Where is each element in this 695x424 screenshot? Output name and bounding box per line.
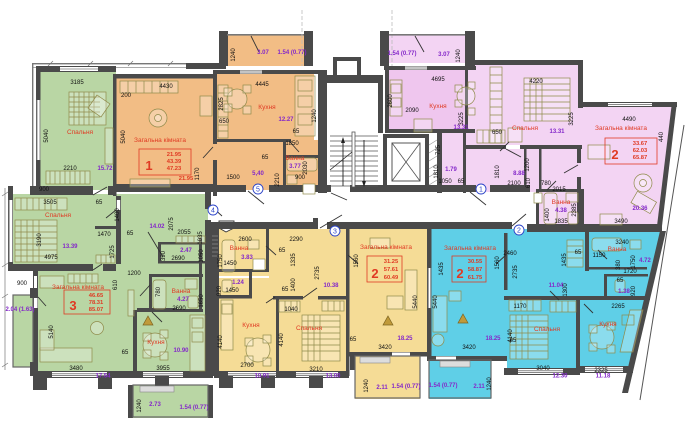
- svg-text:1400: 1400: [545, 208, 551, 222]
- svg-text:Ванна: Ванна: [552, 199, 571, 206]
- svg-text:1150: 1150: [593, 253, 607, 259]
- svg-text:1.54 (0.77): 1.54 (0.77): [277, 50, 306, 56]
- svg-text:3240: 3240: [615, 240, 629, 246]
- svg-text:1240: 1240: [137, 399, 143, 413]
- svg-text:1450: 1450: [223, 261, 237, 267]
- svg-text:3480: 3480: [69, 366, 83, 372]
- svg-text:Спальня: Спальня: [296, 325, 323, 332]
- svg-text:1170: 1170: [514, 304, 528, 310]
- svg-text:65: 65: [127, 231, 134, 237]
- svg-text:5040: 5040: [121, 130, 127, 144]
- svg-text:18.25: 18.25: [397, 336, 413, 342]
- svg-text:Спальня: Спальня: [512, 125, 539, 132]
- svg-text:4140: 4140: [508, 329, 514, 343]
- svg-text:5440: 5440: [433, 295, 439, 309]
- svg-text:1.54 (0.77): 1.54 (0.77): [179, 405, 208, 411]
- svg-text:1240: 1240: [312, 109, 318, 123]
- svg-text:1470: 1470: [97, 232, 111, 238]
- svg-text:2090: 2090: [405, 108, 419, 114]
- svg-text:3955: 3955: [156, 366, 170, 372]
- svg-text:2210: 2210: [63, 166, 77, 172]
- svg-text:3225: 3225: [569, 112, 575, 126]
- svg-text:2690: 2690: [172, 306, 186, 312]
- svg-text:Загальна кімната: Загальна кімната: [360, 243, 412, 251]
- svg-text:2.11: 2.11: [473, 384, 485, 390]
- svg-text:21.95: 21.95: [179, 176, 194, 182]
- svg-text:62.03: 62.03: [633, 148, 648, 154]
- svg-text:5040: 5040: [44, 129, 50, 143]
- svg-text:65: 65: [293, 129, 300, 135]
- svg-text:2210: 2210: [275, 173, 281, 187]
- svg-text:2700: 2700: [240, 363, 254, 369]
- svg-text:4.72: 4.72: [639, 258, 651, 264]
- svg-text:1170: 1170: [195, 167, 201, 181]
- svg-text:4695: 4695: [431, 77, 445, 83]
- svg-text:2290: 2290: [289, 237, 303, 243]
- svg-text:2055: 2055: [177, 230, 191, 236]
- svg-text:65: 65: [282, 287, 289, 293]
- svg-text:5: 5: [256, 187, 260, 194]
- svg-text:1435: 1435: [562, 253, 568, 267]
- svg-text:1810: 1810: [495, 165, 501, 179]
- svg-text:61.75: 61.75: [468, 275, 483, 281]
- svg-text:Спальня: Спальня: [534, 326, 561, 333]
- svg-text:Загальна кімната: Загальна кімната: [595, 124, 647, 132]
- svg-text:65: 65: [279, 248, 286, 254]
- svg-text:610: 610: [113, 279, 119, 290]
- svg-text:Кухня: Кухня: [147, 339, 165, 346]
- svg-text:2075: 2075: [169, 217, 175, 231]
- svg-text:4220: 4220: [529, 79, 543, 85]
- svg-text:900: 900: [39, 187, 50, 193]
- svg-text:1725: 1725: [110, 245, 116, 259]
- svg-text:17.54: 17.54: [95, 374, 111, 380]
- svg-text:18.25: 18.25: [485, 336, 501, 342]
- svg-text:78.31: 78.31: [89, 300, 104, 306]
- svg-text:200: 200: [121, 93, 132, 99]
- svg-text:5440: 5440: [413, 295, 419, 309]
- svg-text:1240: 1240: [231, 48, 237, 62]
- svg-text:3.07: 3.07: [438, 52, 450, 58]
- svg-text:1810: 1810: [434, 165, 440, 179]
- svg-text:1560: 1560: [354, 254, 360, 268]
- svg-text:5140: 5140: [49, 325, 55, 339]
- svg-text:4430: 4430: [159, 84, 173, 90]
- svg-text:Кухня: Кухня: [242, 322, 260, 329]
- svg-text:1240: 1240: [487, 377, 493, 391]
- svg-text:2015: 2015: [552, 187, 566, 193]
- svg-text:1720: 1720: [623, 269, 637, 275]
- svg-text:2825: 2825: [219, 97, 225, 111]
- svg-text:2030: 2030: [303, 161, 309, 175]
- svg-text:3505: 3505: [43, 200, 57, 206]
- svg-text:1560: 1560: [495, 256, 501, 270]
- svg-text:1240: 1240: [456, 49, 462, 63]
- svg-text:4490: 4490: [622, 117, 636, 123]
- svg-text:610: 610: [526, 177, 532, 188]
- svg-text:780: 780: [156, 286, 162, 297]
- svg-text:14.02: 14.02: [149, 224, 165, 230]
- svg-text:Загальна кімната: Загальна кімната: [444, 244, 496, 252]
- svg-text:2.11: 2.11: [376, 385, 388, 391]
- svg-text:47.23: 47.23: [167, 166, 182, 172]
- svg-text:1050: 1050: [199, 249, 205, 263]
- svg-text:2.04 (1.63): 2.04 (1.63): [5, 307, 34, 313]
- svg-text:1: 1: [145, 158, 152, 173]
- svg-text:65: 65: [350, 337, 357, 343]
- svg-text:Ванна: Ванна: [172, 288, 191, 295]
- svg-text:2735: 2735: [513, 265, 519, 279]
- svg-text:3040: 3040: [536, 366, 550, 372]
- svg-text:2265: 2265: [611, 304, 625, 310]
- svg-text:1650: 1650: [199, 294, 205, 308]
- svg-text:1750: 1750: [218, 254, 224, 268]
- svg-text:2100: 2100: [507, 181, 521, 187]
- svg-text:900: 900: [17, 281, 28, 287]
- svg-text:12.30: 12.30: [552, 374, 568, 380]
- svg-text:20.36: 20.36: [632, 206, 648, 212]
- svg-text:1.24: 1.24: [232, 280, 244, 286]
- svg-text:3190: 3190: [37, 233, 43, 247]
- svg-text:1.38: 1.38: [618, 289, 630, 295]
- svg-text:11.04: 11.04: [549, 283, 564, 289]
- svg-text:1500: 1500: [226, 175, 240, 181]
- svg-text:1450: 1450: [225, 288, 239, 294]
- svg-text:10.91: 10.91: [254, 374, 270, 380]
- svg-text:440: 440: [659, 131, 665, 142]
- svg-text:30.55: 30.55: [468, 259, 483, 265]
- svg-text:1750: 1750: [631, 255, 637, 269]
- svg-text:65: 65: [96, 200, 103, 206]
- svg-text:13.31: 13.31: [549, 129, 565, 135]
- svg-text:1200: 1200: [127, 271, 141, 277]
- svg-text:8.88: 8.88: [513, 171, 525, 177]
- svg-text:Ванна: Ванна: [608, 246, 627, 253]
- svg-text:Кухня: Кухня: [258, 104, 276, 111]
- svg-text:3420: 3420: [378, 345, 392, 351]
- svg-text:4: 4: [211, 208, 215, 215]
- svg-text:85.07: 85.07: [89, 307, 104, 313]
- svg-text:1335: 1335: [291, 253, 297, 267]
- svg-text:1: 1: [479, 187, 483, 194]
- svg-text:10.38: 10.38: [323, 283, 339, 289]
- svg-text:Ванна: Ванна: [230, 245, 249, 252]
- svg-text:1.54 (0.77): 1.54 (0.77): [391, 384, 420, 390]
- svg-text:Спальня: Спальня: [45, 212, 72, 219]
- svg-text:43.39: 43.39: [167, 159, 182, 165]
- svg-text:3490: 3490: [614, 219, 628, 225]
- svg-text:Спальня: Спальня: [67, 129, 94, 136]
- svg-text:900: 900: [295, 175, 306, 181]
- svg-text:65: 65: [617, 278, 624, 284]
- svg-text:1300: 1300: [563, 283, 569, 297]
- svg-text:1435: 1435: [439, 262, 445, 276]
- svg-text:1200: 1200: [525, 158, 531, 172]
- svg-text:2: 2: [456, 266, 463, 281]
- svg-text:21.95: 21.95: [167, 152, 182, 158]
- svg-text:2600: 2600: [388, 94, 394, 108]
- svg-text:65.87: 65.87: [633, 155, 648, 161]
- svg-text:65: 65: [262, 155, 269, 161]
- svg-text:1.54 (0.77): 1.54 (0.77): [387, 51, 416, 57]
- svg-text:Кухня: Кухня: [599, 321, 617, 328]
- svg-text:65: 65: [458, 179, 465, 185]
- svg-text:2: 2: [611, 147, 618, 162]
- svg-text:1040: 1040: [284, 307, 298, 313]
- svg-text:33.67: 33.67: [633, 141, 648, 147]
- svg-text:57.61: 57.61: [384, 267, 399, 273]
- svg-text:3210: 3210: [309, 367, 323, 373]
- svg-text:4445: 4445: [255, 82, 269, 88]
- svg-text:12.27: 12.27: [278, 117, 294, 123]
- svg-text:2735: 2735: [315, 266, 321, 280]
- svg-text:920: 920: [217, 285, 223, 296]
- svg-text:2.47: 2.47: [180, 248, 192, 254]
- svg-text:3: 3: [333, 229, 337, 236]
- svg-text:2690: 2690: [171, 256, 185, 262]
- svg-text:4140: 4140: [218, 335, 224, 349]
- svg-text:11.18: 11.18: [596, 374, 611, 380]
- svg-text:31.25: 31.25: [384, 259, 399, 265]
- svg-text:3.83: 3.83: [241, 255, 253, 261]
- svg-text:13.39: 13.39: [62, 244, 78, 250]
- svg-text:15.72: 15.72: [97, 166, 113, 172]
- svg-text:650: 650: [219, 119, 230, 125]
- svg-text:5,40: 5,40: [252, 171, 264, 177]
- svg-text:1035: 1035: [198, 231, 204, 245]
- svg-text:3.77: 3.77: [289, 164, 301, 170]
- svg-text:1850: 1850: [285, 141, 299, 147]
- svg-text:Загальна кімната: Загальна кімната: [134, 136, 186, 144]
- svg-text:58.87: 58.87: [468, 267, 483, 273]
- svg-text:4.38: 4.38: [555, 208, 567, 214]
- svg-text:3185: 3185: [70, 80, 84, 86]
- svg-text:Ванна: Ванна: [286, 155, 305, 162]
- svg-text:3.07: 3.07: [257, 50, 269, 56]
- svg-text:920: 920: [631, 285, 637, 296]
- svg-text:725: 725: [436, 144, 442, 155]
- svg-text:46.65: 46.65: [89, 293, 104, 299]
- svg-text:3420: 3420: [462, 345, 476, 351]
- svg-text:4140: 4140: [279, 333, 285, 347]
- svg-text:1400: 1400: [115, 208, 121, 222]
- svg-text:3225: 3225: [459, 112, 465, 126]
- svg-text:10.90: 10.90: [173, 348, 189, 354]
- svg-text:650: 650: [492, 130, 503, 136]
- svg-text:65: 65: [122, 350, 129, 356]
- svg-text:390: 390: [161, 250, 167, 261]
- svg-text:2: 2: [371, 266, 378, 281]
- svg-text:2: 2: [517, 228, 521, 235]
- svg-text:780: 780: [541, 181, 552, 187]
- svg-text:1835: 1835: [554, 219, 568, 225]
- svg-text:65: 65: [575, 250, 582, 256]
- svg-text:4.27: 4.27: [177, 297, 189, 303]
- svg-text:2.73: 2.73: [149, 402, 161, 408]
- svg-text:380: 380: [616, 259, 622, 270]
- svg-text:1050: 1050: [438, 179, 452, 185]
- svg-text:1400: 1400: [291, 278, 297, 292]
- svg-text:3: 3: [69, 298, 76, 313]
- svg-text:2600: 2600: [238, 237, 252, 243]
- svg-text:60.49: 60.49: [384, 275, 399, 281]
- svg-text:Кухня: Кухня: [429, 103, 447, 110]
- svg-text:1.54 (0.77): 1.54 (0.77): [428, 383, 457, 389]
- svg-text:4975: 4975: [44, 255, 58, 261]
- svg-text:1240: 1240: [364, 379, 370, 393]
- svg-text:2385: 2385: [572, 203, 578, 217]
- svg-text:1.79: 1.79: [445, 167, 457, 173]
- svg-text:2460: 2460: [503, 251, 517, 257]
- svg-text:13.00: 13.00: [325, 374, 341, 380]
